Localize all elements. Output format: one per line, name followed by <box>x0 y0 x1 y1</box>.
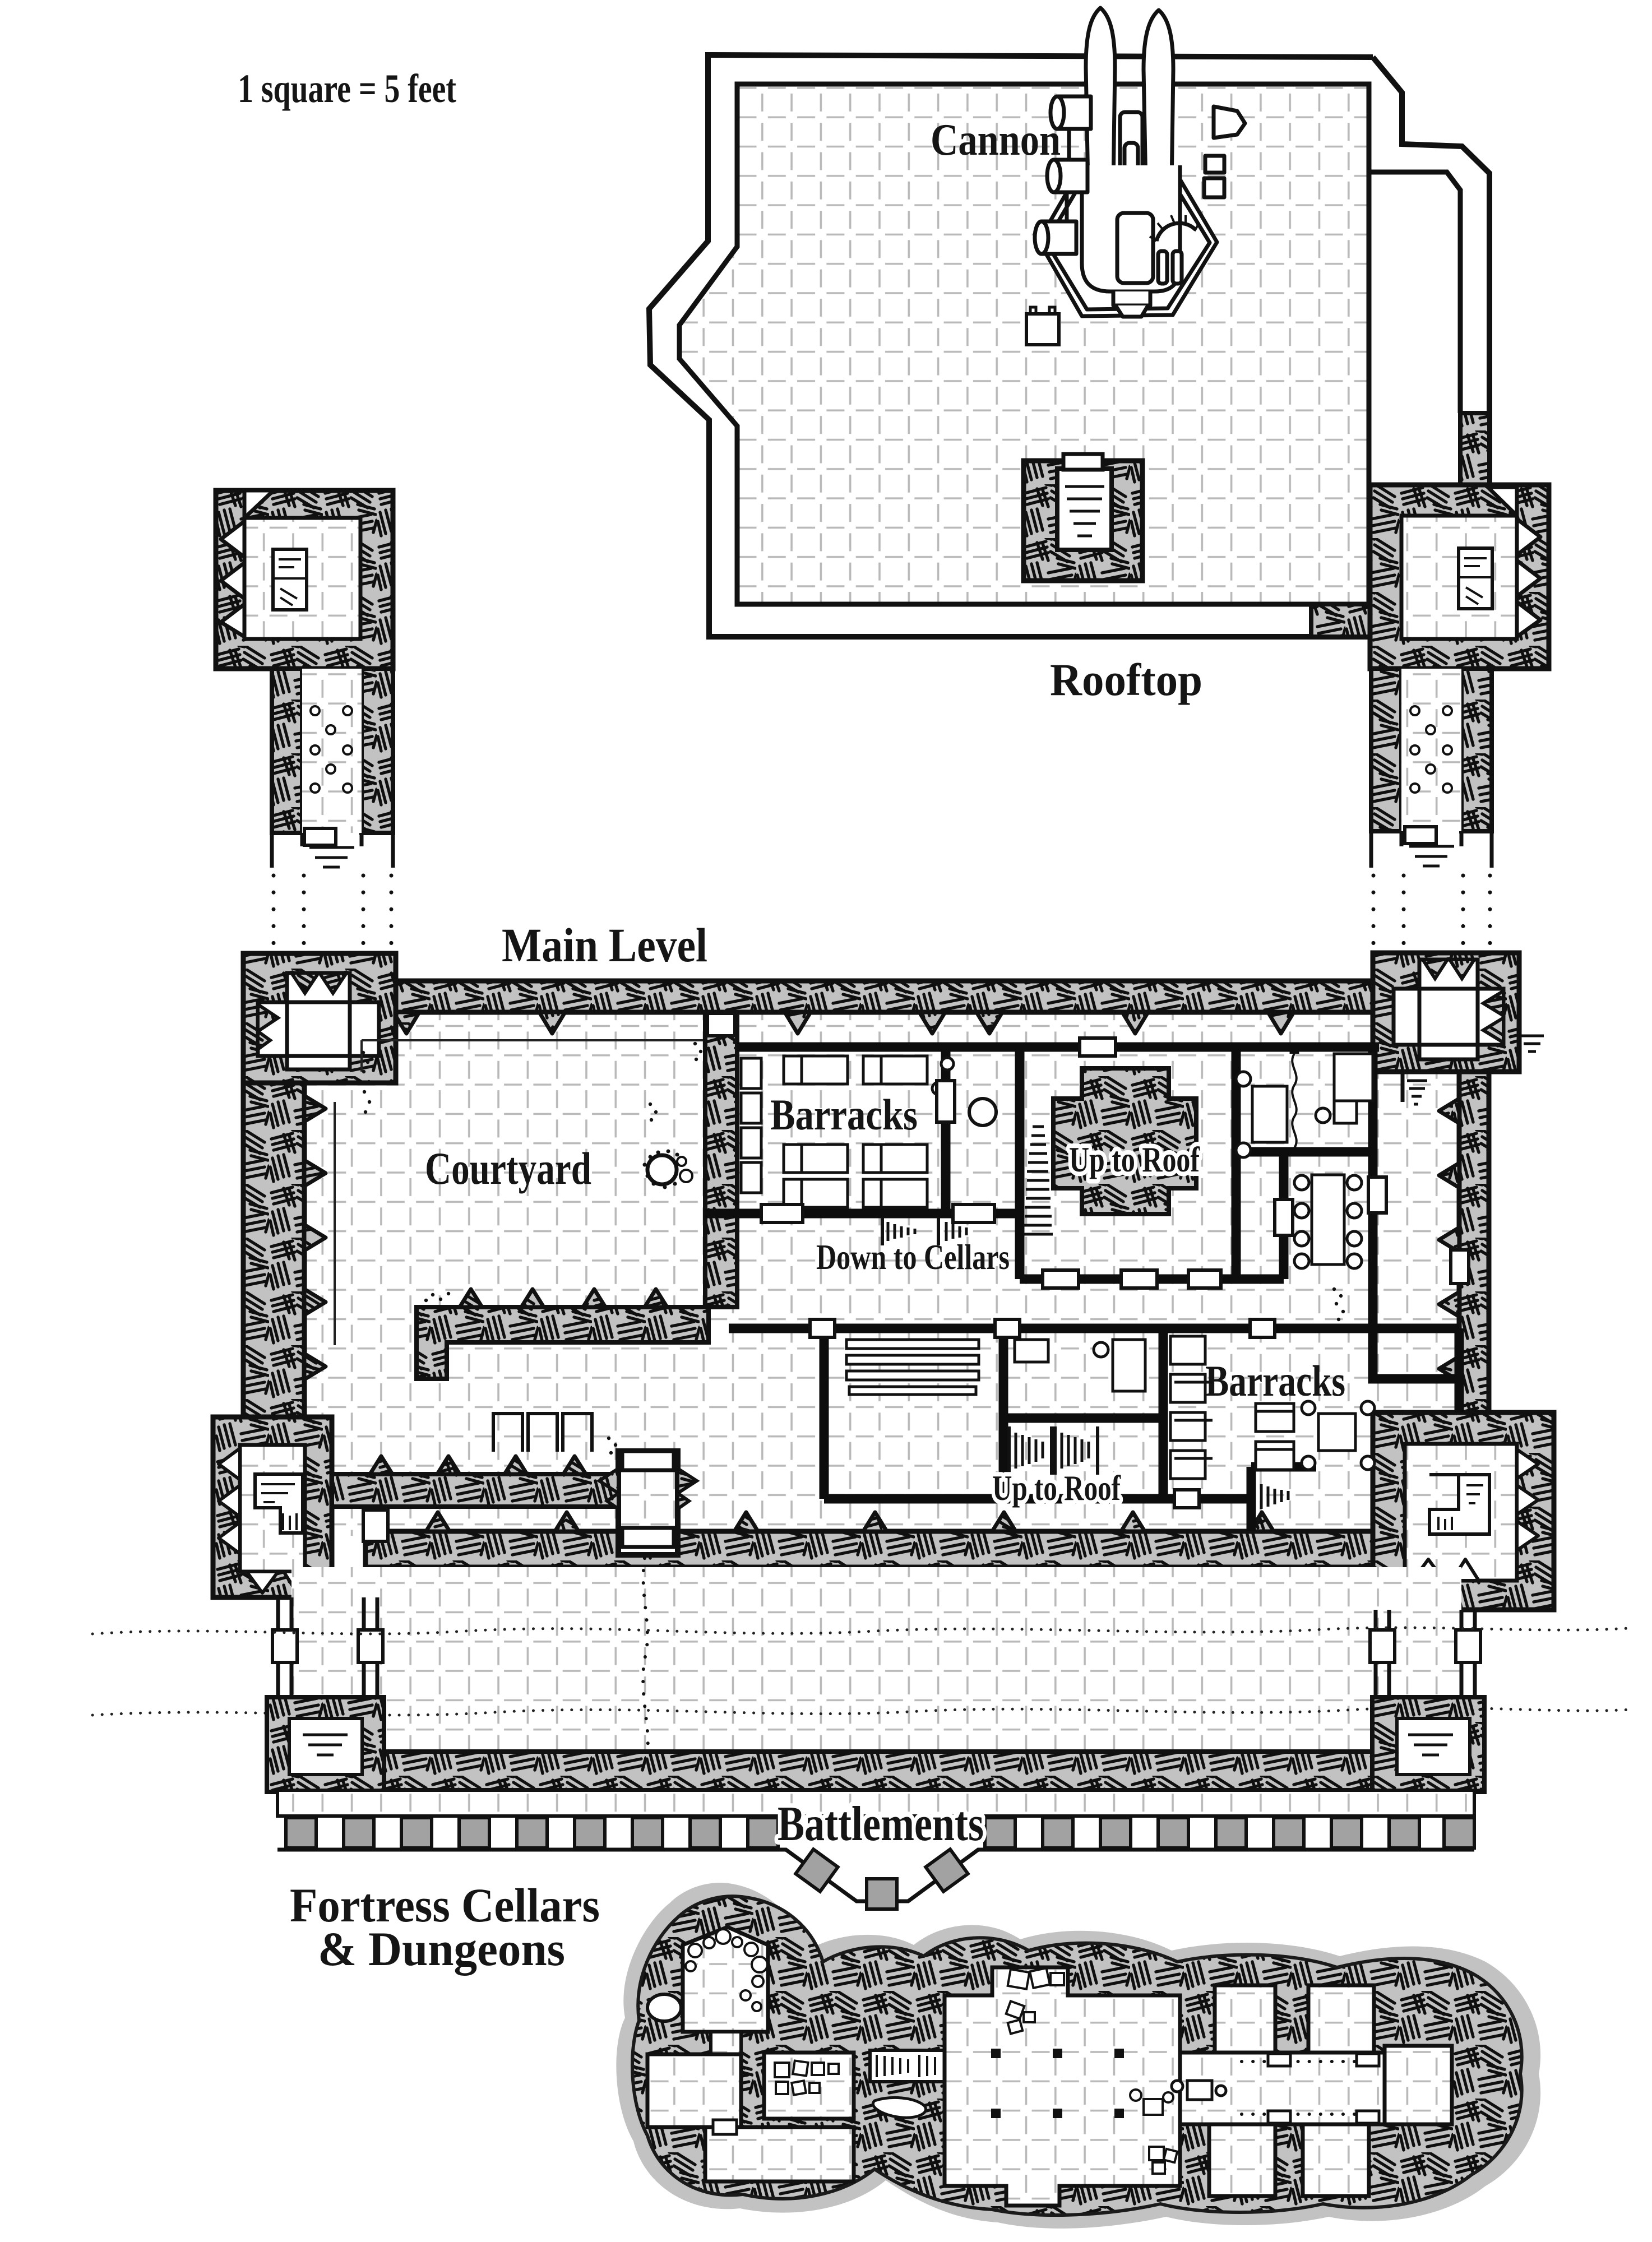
svg-text:Battlements: Battlements <box>778 1797 984 1851</box>
svg-text:1 square = 5 feet: 1 square = 5 feet <box>238 66 456 111</box>
svg-text:Down to Cellars: Down to Cellars <box>816 1237 1010 1277</box>
svg-text:Barracks: Barracks <box>1205 1356 1345 1405</box>
svg-text:Main Level: Main Level <box>502 918 707 972</box>
svg-text:Cannon: Cannon <box>931 115 1061 165</box>
svg-text:Up to Roof: Up to Roof <box>1069 1139 1200 1179</box>
svg-text:Barracks: Barracks <box>770 1090 918 1139</box>
svg-text:& Dungeons: & Dungeons <box>318 1922 565 1976</box>
svg-text:Courtyard: Courtyard <box>425 1143 591 1194</box>
svg-text:Rooftop: Rooftop <box>1050 654 1202 705</box>
svg-text:Up to Roof: Up to Roof <box>992 1468 1121 1508</box>
